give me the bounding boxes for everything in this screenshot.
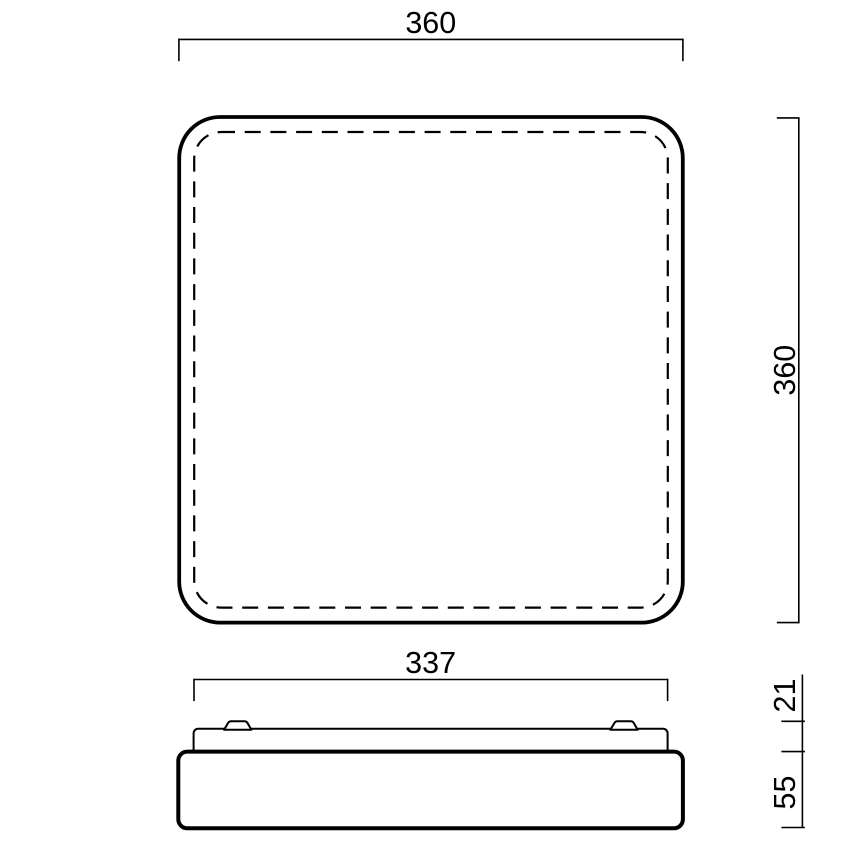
svg-text:360: 360 (405, 6, 456, 40)
svg-text:360: 360 (768, 345, 802, 396)
svg-text:21: 21 (768, 679, 802, 713)
svg-text:337: 337 (405, 646, 456, 680)
svg-text:55: 55 (768, 776, 802, 810)
